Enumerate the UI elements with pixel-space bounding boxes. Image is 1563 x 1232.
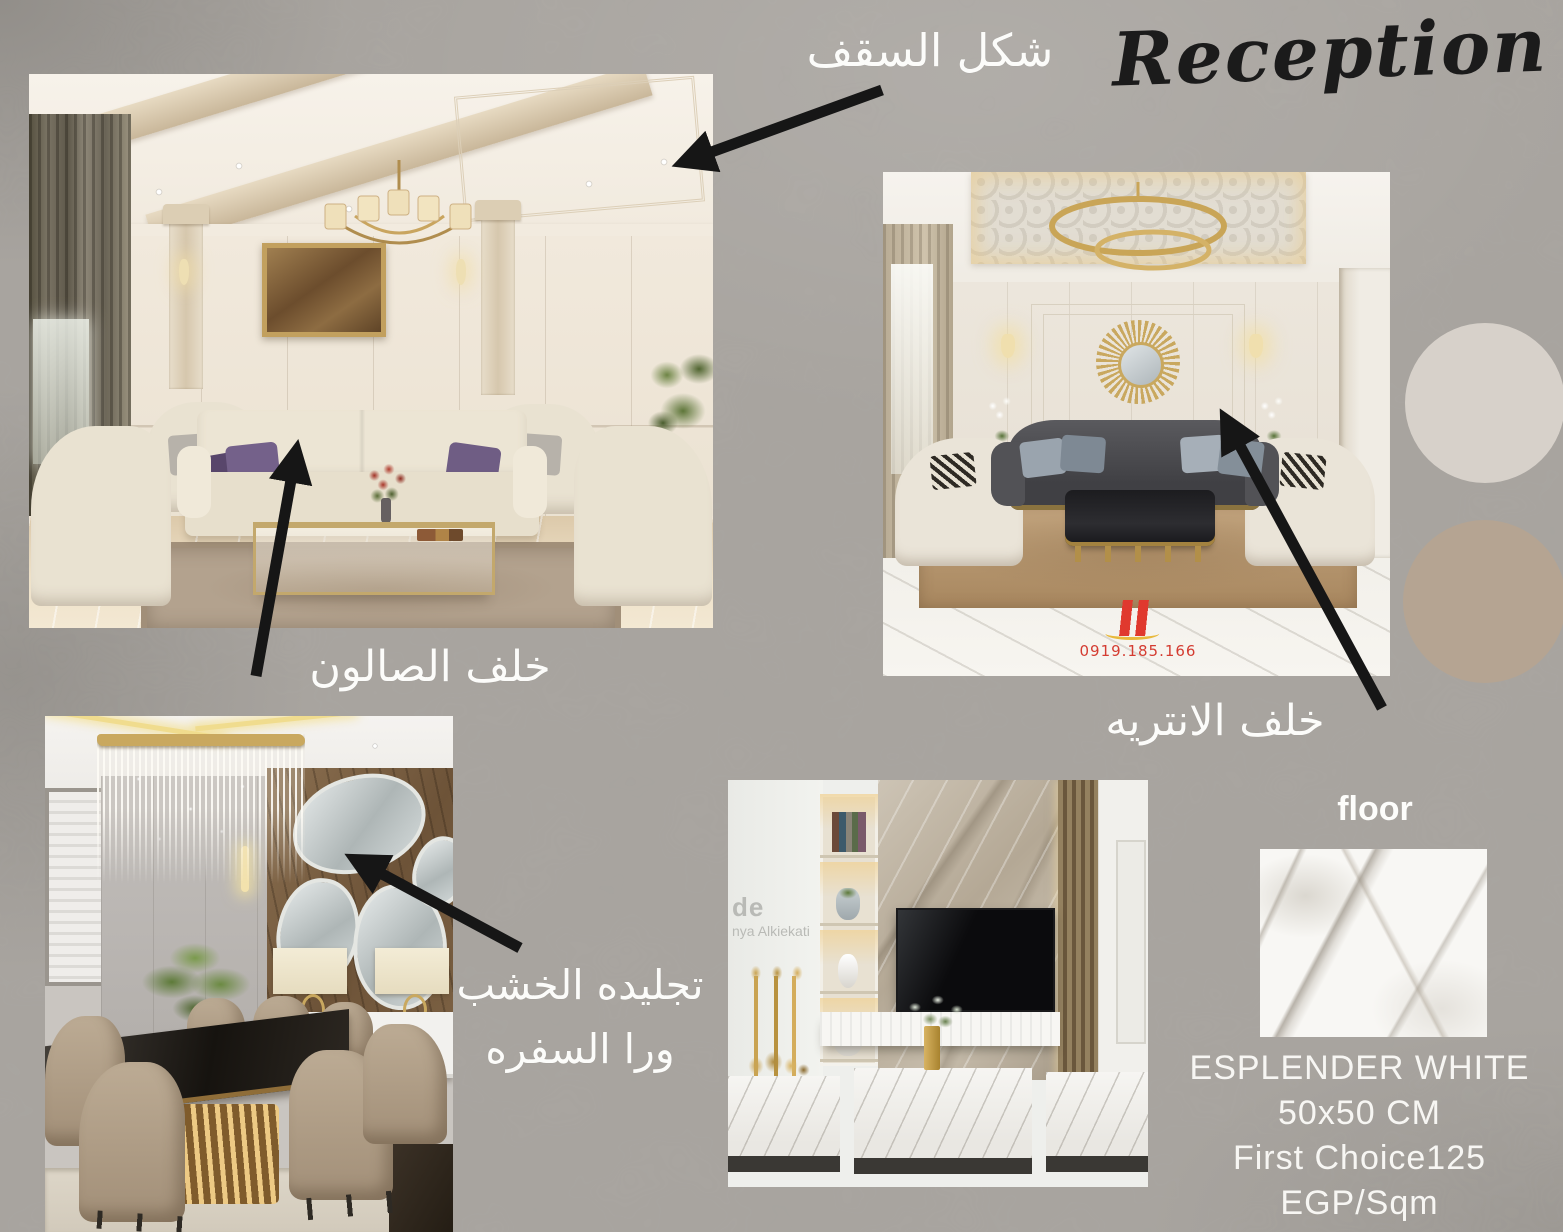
arrow-to-ceiling bbox=[684, 90, 882, 162]
photo4-marble-coffee-table bbox=[728, 1076, 840, 1172]
photo4-marble-coffee-table bbox=[1046, 1072, 1148, 1172]
annotation-wood-cladding: تجليده الخشب ورا السفره bbox=[425, 954, 735, 1081]
floor-product-name: ESPLENDER WHITE bbox=[1156, 1046, 1563, 1091]
photo1-books bbox=[417, 529, 463, 541]
photo-lounge-dark-sofa: 0919.185.166 bbox=[883, 172, 1390, 676]
floor-specification: ESPLENDER WHITE 50x50 CM First Choice125… bbox=[1156, 1046, 1563, 1226]
photo4-wood-slats bbox=[1058, 780, 1098, 1080]
photo3-crystal-chandelier bbox=[97, 734, 305, 884]
photo4-shelf-cell bbox=[820, 930, 878, 994]
photo2-wall-sconce bbox=[1249, 334, 1263, 358]
photo4-watermark-line2: nya Alkiekati bbox=[732, 923, 832, 939]
photo3-dark-floor bbox=[389, 1144, 453, 1232]
photo-tv-wall: de nya Alkiekati bbox=[728, 780, 1148, 1187]
floor-tile-size: 50x50 CM bbox=[1156, 1091, 1563, 1136]
photo4-watermark-line1: de bbox=[732, 892, 832, 923]
photo1-armchair bbox=[574, 426, 712, 606]
photo2-ring-chandelier bbox=[1041, 182, 1236, 292]
photo2-watermark-phone: 0919.185.166 bbox=[1063, 642, 1213, 660]
photo-classic-living-room bbox=[29, 74, 713, 628]
photo4-shelf-cell bbox=[820, 862, 878, 926]
photo4-marble-coffee-table bbox=[854, 1068, 1032, 1174]
photo4-door bbox=[1116, 840, 1146, 1044]
color-swatch-light bbox=[1405, 323, 1563, 483]
photo1-flower-vase bbox=[357, 460, 415, 522]
photo2-gray-pillow bbox=[1217, 437, 1265, 478]
photo4-gold-vase bbox=[924, 1026, 940, 1070]
photo2-coffee-table bbox=[1065, 490, 1215, 546]
photo2-patterned-pillow bbox=[929, 452, 976, 490]
annotation-wood-line2: ورا السفره bbox=[425, 1018, 735, 1082]
annotation-behind-salon: خلف الصالون bbox=[280, 642, 580, 692]
photo1-pilaster bbox=[169, 204, 203, 389]
floor-price: First Choice125 EGP/Sqm bbox=[1156, 1136, 1563, 1226]
floor-section-label: floor bbox=[1290, 790, 1460, 829]
page-title: Reception bbox=[1099, 2, 1562, 104]
photo3-table-lamp bbox=[273, 948, 347, 994]
photo1-wall-sconce bbox=[179, 259, 189, 285]
photo1-armchair bbox=[31, 426, 171, 606]
photo4-watermark: de nya Alkiekati bbox=[732, 892, 832, 939]
photo-dining-room bbox=[45, 716, 453, 1232]
photo1-pilaster bbox=[481, 200, 515, 395]
photo2-watermark-logo bbox=[1109, 600, 1159, 636]
photo1-framed-painting bbox=[262, 243, 386, 337]
photo2-wall-sconce bbox=[1001, 334, 1015, 358]
marble-tile-sample bbox=[1260, 849, 1487, 1037]
photo2-sunburst-mirror bbox=[1096, 320, 1180, 404]
photo3-dining-chair bbox=[79, 1062, 185, 1222]
annotation-wood-line1: تجليده الخشب bbox=[425, 954, 735, 1018]
photo2-gray-pillow bbox=[1060, 435, 1106, 474]
photo4-shelf-cell bbox=[820, 794, 878, 858]
photo4-gold-decor bbox=[742, 1042, 812, 1082]
reception-moodboard: 0919.185.166 de bbox=[0, 0, 1563, 1232]
photo1-wall-sconce bbox=[456, 259, 466, 285]
color-swatch-dark bbox=[1403, 520, 1563, 683]
photo2-patterned-pillow bbox=[1279, 452, 1326, 490]
annotation-behind-furniture-set: خلف الانتريه bbox=[1060, 696, 1370, 746]
annotation-ceiling-shape: شكل السقف bbox=[780, 24, 1080, 77]
